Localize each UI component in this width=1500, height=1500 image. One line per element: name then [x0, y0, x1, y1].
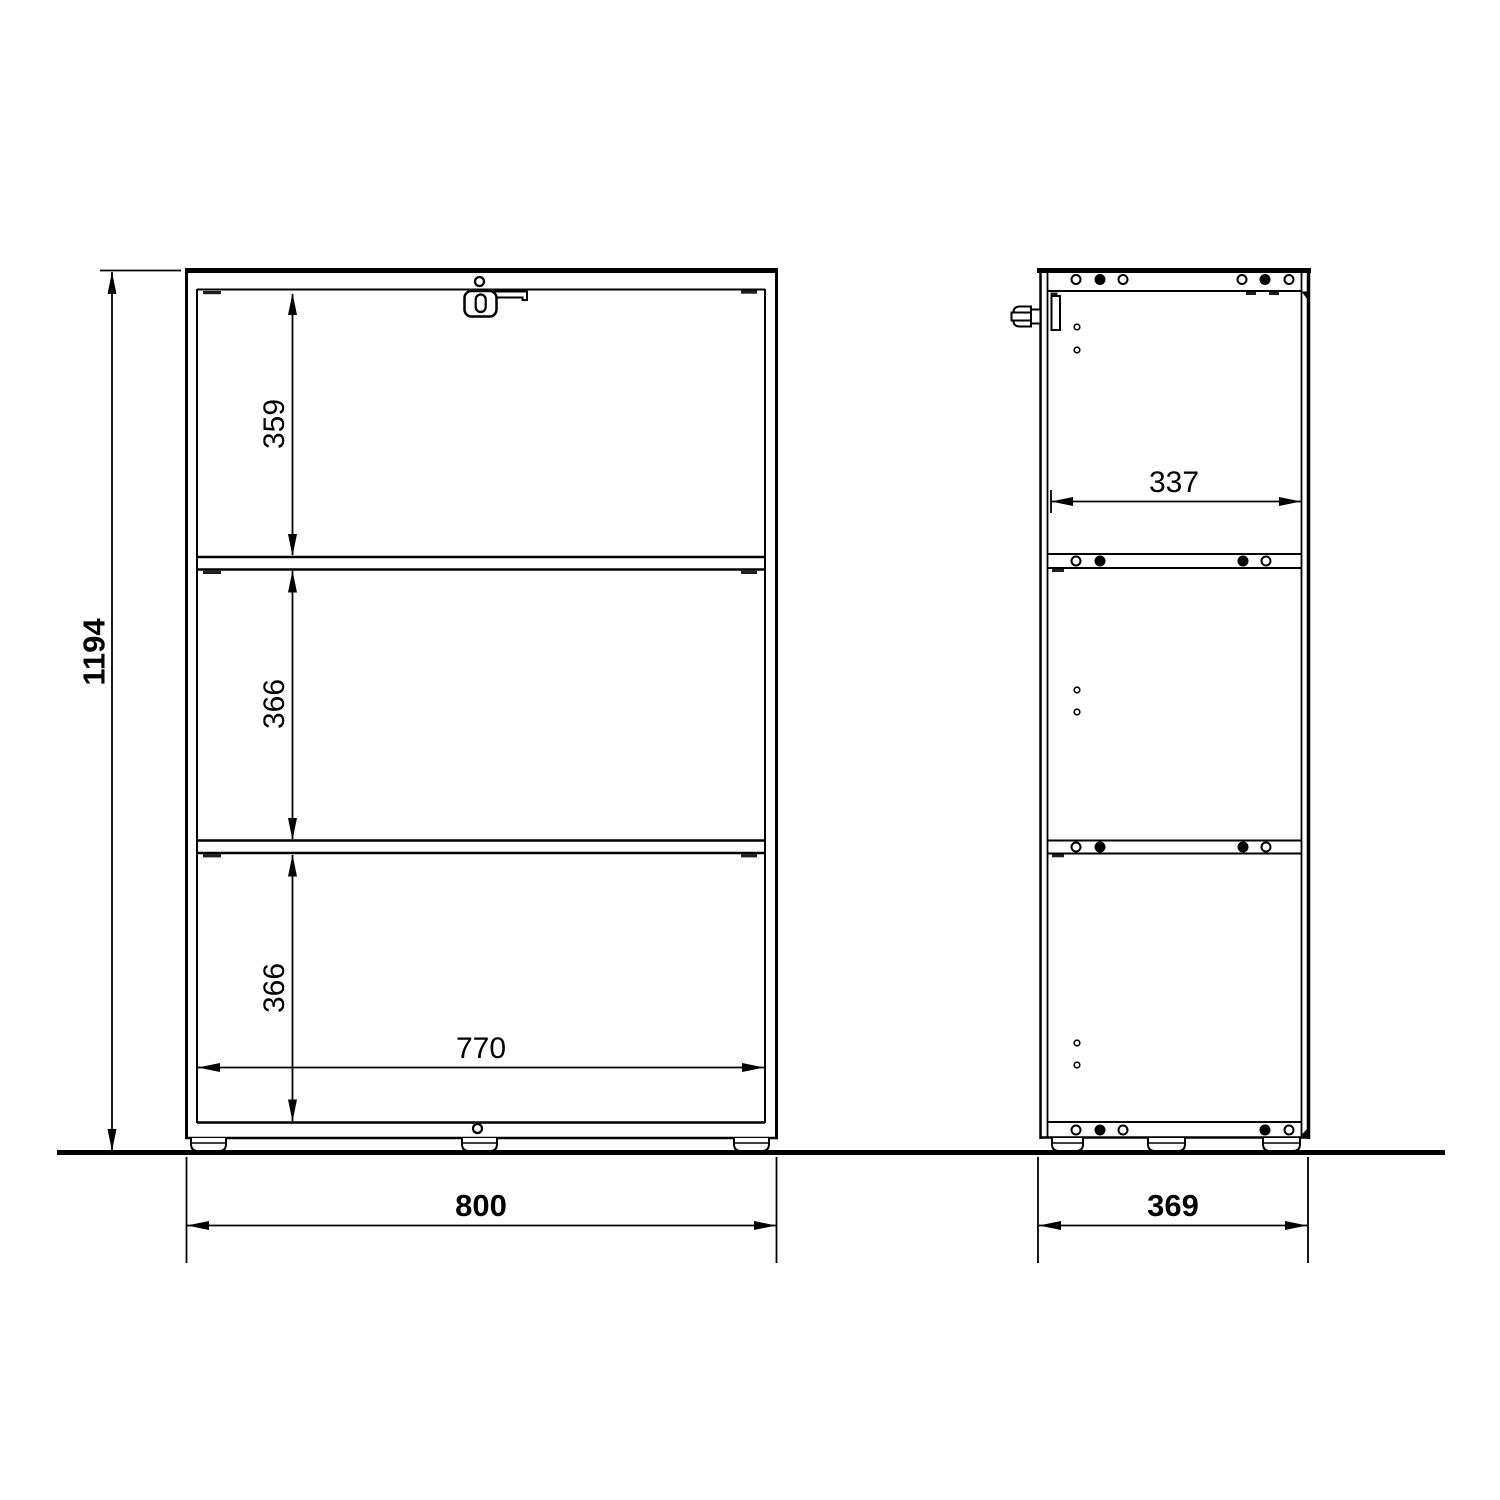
foot: [191, 1138, 226, 1151]
mid-rail-upper-screw-holes: [1072, 556, 1271, 567]
dimension-overall-height: 1194: [77, 271, 182, 1152]
shelf-upper: [197, 557, 765, 570]
foot: [734, 1138, 769, 1151]
technical-drawing-page: 1194 359 366 366 770 800 337: [0, 0, 1500, 1500]
lock-icon: [465, 277, 528, 317]
dim-label-top-compartment: 359: [258, 399, 291, 449]
lock-screw-hole: [475, 277, 484, 286]
dim-label-inner-depth: 337: [1149, 466, 1199, 499]
cabinet-dimension-drawing: 1194 359 366 366 770 800 337: [0, 0, 1500, 1500]
dimension-overall-depth: 369: [1038, 1157, 1308, 1263]
front-feet: [191, 1138, 769, 1151]
foot: [462, 1138, 497, 1151]
foot: [1052, 1138, 1083, 1151]
dim-label-bottom-compartment: 366: [258, 963, 291, 1013]
corner-brackets: [1052, 292, 1308, 1137]
shelf-pin-marks: [203, 291, 757, 858]
bottom-rail-screw-holes: [1072, 1125, 1294, 1136]
dim-label-middle-compartment: 366: [258, 679, 291, 729]
dim-label-inner-width: 770: [456, 1032, 506, 1065]
shelf-pin-holes: [1074, 324, 1080, 1068]
foot: [1148, 1138, 1185, 1151]
dim-label-overall-height: 1194: [77, 618, 112, 686]
dimension-middle-compartment: 366: [258, 571, 297, 841]
hinge-plate: [1051, 293, 1061, 331]
dimension-top-compartment: 359: [258, 293, 297, 556]
lock-keyhole: [476, 295, 486, 313]
side-feet: [1052, 1138, 1300, 1151]
shelf-lower: [197, 841, 765, 854]
dimension-overall-width: 800: [187, 1157, 777, 1263]
dim-label-overall-width: 800: [455, 1188, 507, 1223]
dimension-inner-depth: 337: [1051, 466, 1301, 513]
top-rail-screw-holes: [1072, 274, 1294, 285]
dim-label-overall-depth: 369: [1147, 1188, 1199, 1223]
mid-rail-lower-screw-holes: [1072, 842, 1271, 853]
foot: [1263, 1138, 1300, 1151]
side-lock-barrel-icon: [1012, 307, 1041, 327]
front-bottom-screw-hole: [473, 1124, 482, 1133]
dimension-bottom-compartment: 366: [258, 855, 297, 1122]
dimension-inner-width: 770: [198, 1032, 764, 1072]
side-view: [1012, 268, 1312, 1151]
